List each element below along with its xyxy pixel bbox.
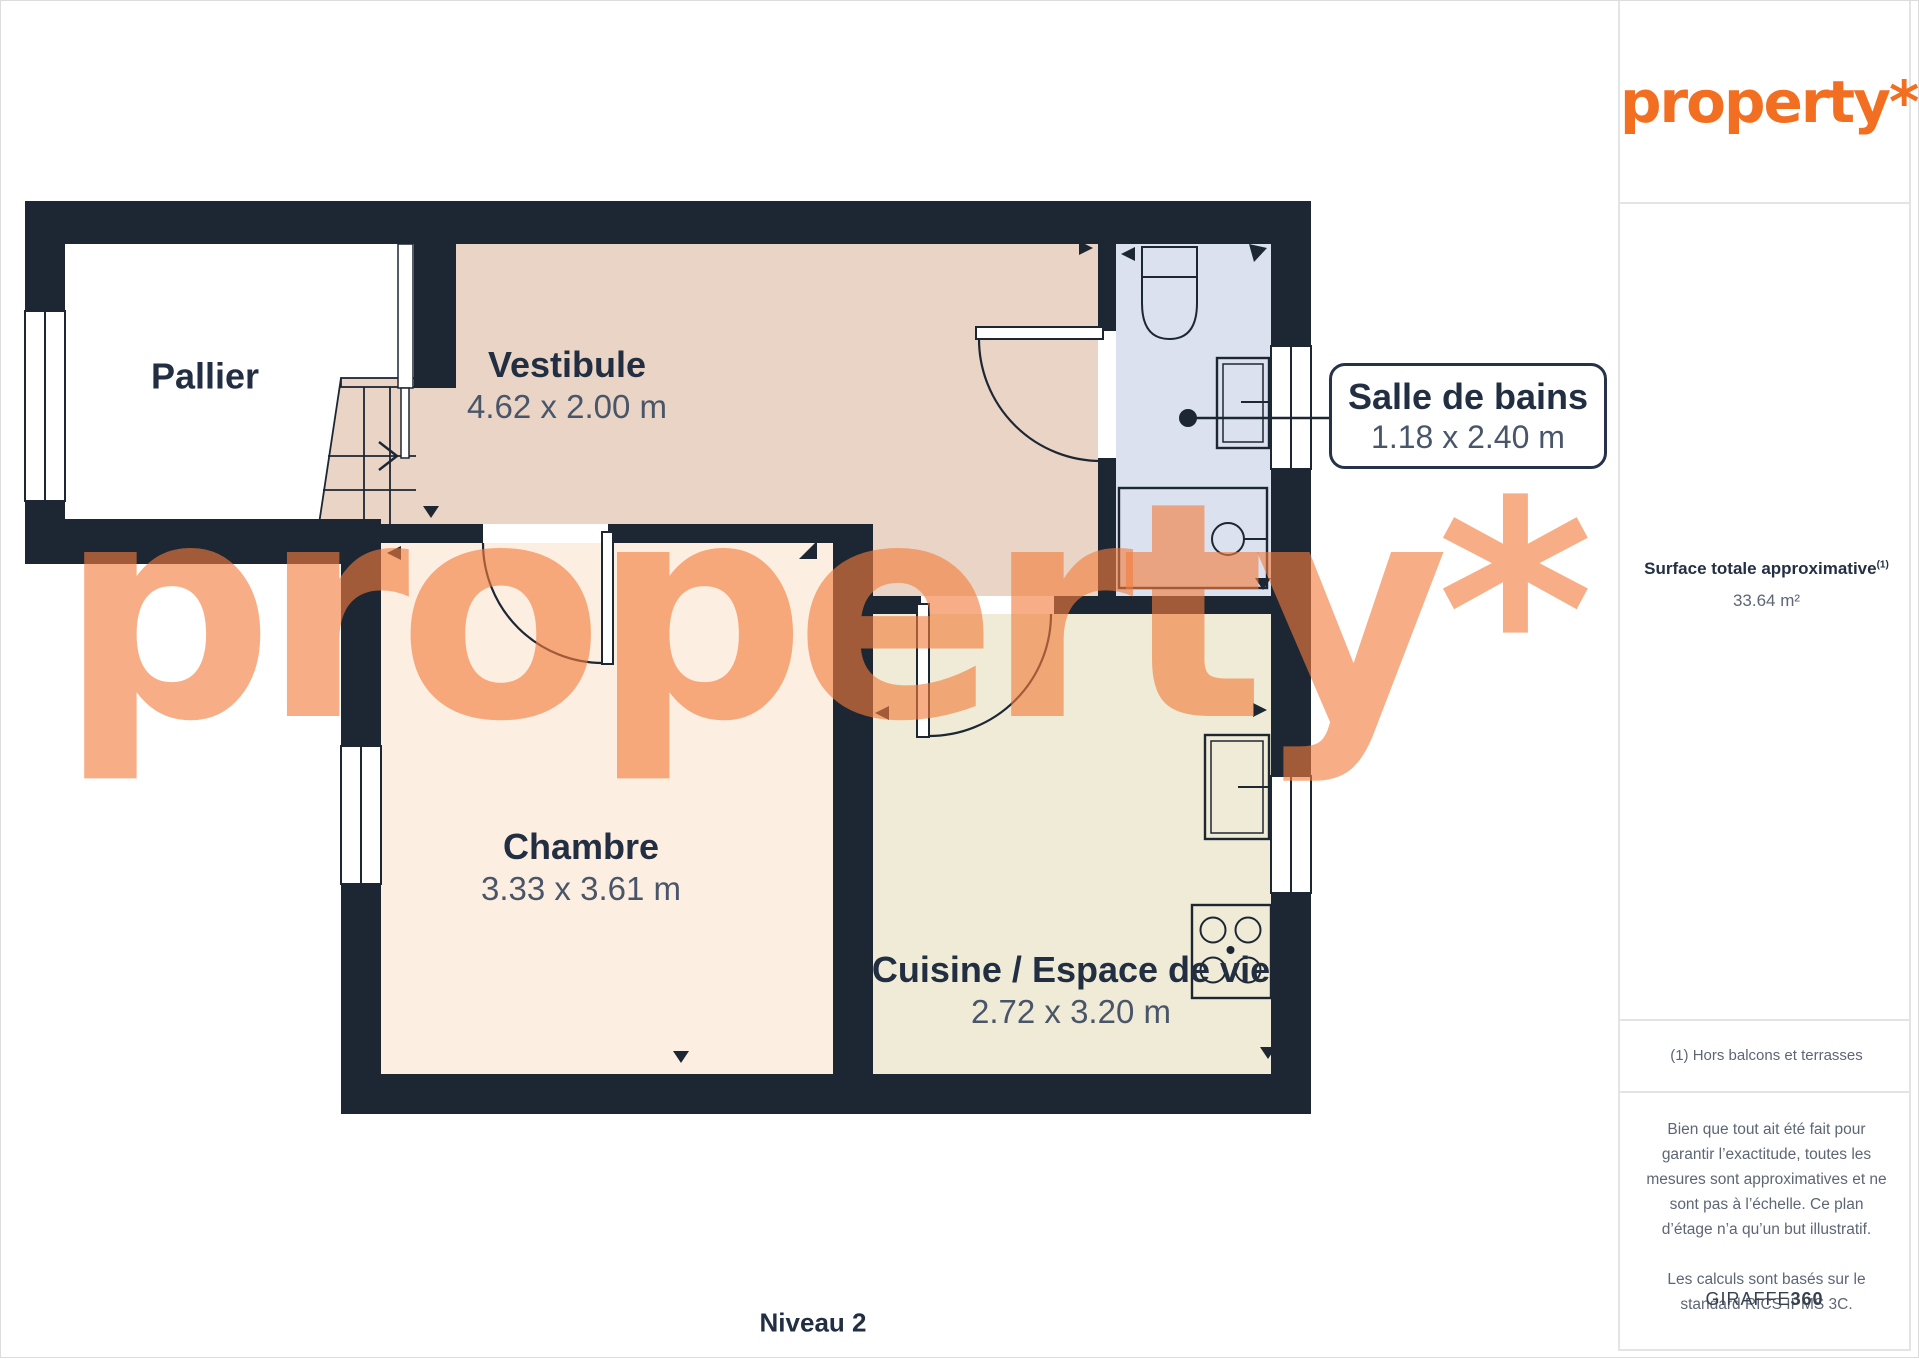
- room-name: Vestibule: [467, 343, 667, 386]
- brand-logo: property*: [1620, 73, 1909, 131]
- page: { "brand": { "logo_text": "property*", "…: [0, 0, 1919, 1358]
- level-label: Niveau 2: [760, 1308, 867, 1339]
- window-bathroom: [1271, 346, 1311, 469]
- credit-suffix: 360: [1790, 1289, 1823, 1309]
- room-dimensions: 3.33 x 3.61 m: [481, 868, 681, 909]
- room-label-pallier: Pallier: [151, 354, 259, 397]
- window-pallier: [25, 311, 65, 501]
- room-name: Cuisine / Espace de vie: [872, 948, 1270, 991]
- stair-railing: [401, 388, 409, 458]
- room-dimensions: 2.72 x 3.20 m: [872, 991, 1270, 1032]
- sidebar-divider: [1620, 1091, 1909, 1093]
- surface-label-text: Surface totale approximative: [1644, 559, 1876, 578]
- room-dimensions: 4.62 x 2.00 m: [467, 386, 667, 427]
- wall-chambre-top-right: [608, 524, 833, 543]
- room-name: Chambre: [481, 825, 681, 868]
- window-cuisine: [1271, 776, 1311, 893]
- disclaimer-text-1: Bien que tout ait été fait pour garantir…: [1646, 1117, 1887, 1242]
- room-name: Pallier: [151, 354, 259, 397]
- callout-anchor-dot: [1179, 409, 1197, 427]
- room-label-chambre: Chambre 3.33 x 3.61 m: [481, 825, 681, 909]
- room-callout-salle-de-bains: Salle de bains 1.18 x 2.40 m: [1329, 363, 1607, 469]
- room-label-vestibule: Vestibule 4.62 x 2.00 m: [467, 343, 667, 427]
- surface-footnote-ref: (1): [1877, 559, 1889, 570]
- wall-right: [1271, 201, 1311, 1114]
- wall-pallier-bottom: [25, 519, 341, 564]
- wall-chambre-top-left: [374, 524, 483, 543]
- sidebar-divider: [1620, 1019, 1909, 1021]
- surface-value: 33.64 m²: [1636, 591, 1897, 611]
- room-dimensions: 1.18 x 2.40 m: [1371, 418, 1565, 456]
- wall-bottom: [341, 1074, 1311, 1114]
- credit-prefix: GIRAFFE: [1705, 1289, 1790, 1309]
- sidebar-divider: [1620, 202, 1909, 204]
- wall-bathroom-left-lower: [1098, 458, 1116, 596]
- room-name: Salle de bains: [1348, 376, 1588, 417]
- giraffe360-credit: GIRAFFE360: [1620, 1289, 1909, 1310]
- wall-top: [25, 201, 1311, 244]
- wall-bathroom-left-upper: [1098, 244, 1116, 331]
- wall-stub-pallier-vestibule: [414, 244, 456, 388]
- surface-label: Surface totale approximative(1): [1636, 557, 1897, 581]
- room-label-cuisine: Cuisine / Espace de vie 2.72 x 3.20 m: [872, 948, 1270, 1032]
- wall-cuisine-top-left: [833, 596, 921, 614]
- surface-footnote: (1) Hors balcons et terrasses: [1636, 1047, 1897, 1064]
- hall-floor: [414, 388, 456, 524]
- surface-section: Surface totale approximative(1) 33.64 m²: [1636, 557, 1897, 611]
- wall-cuisine-top-right: [1054, 596, 1271, 614]
- window-chambre: [341, 746, 381, 884]
- info-sidebar: property* Surface totale approximative(1…: [1618, 1, 1911, 1351]
